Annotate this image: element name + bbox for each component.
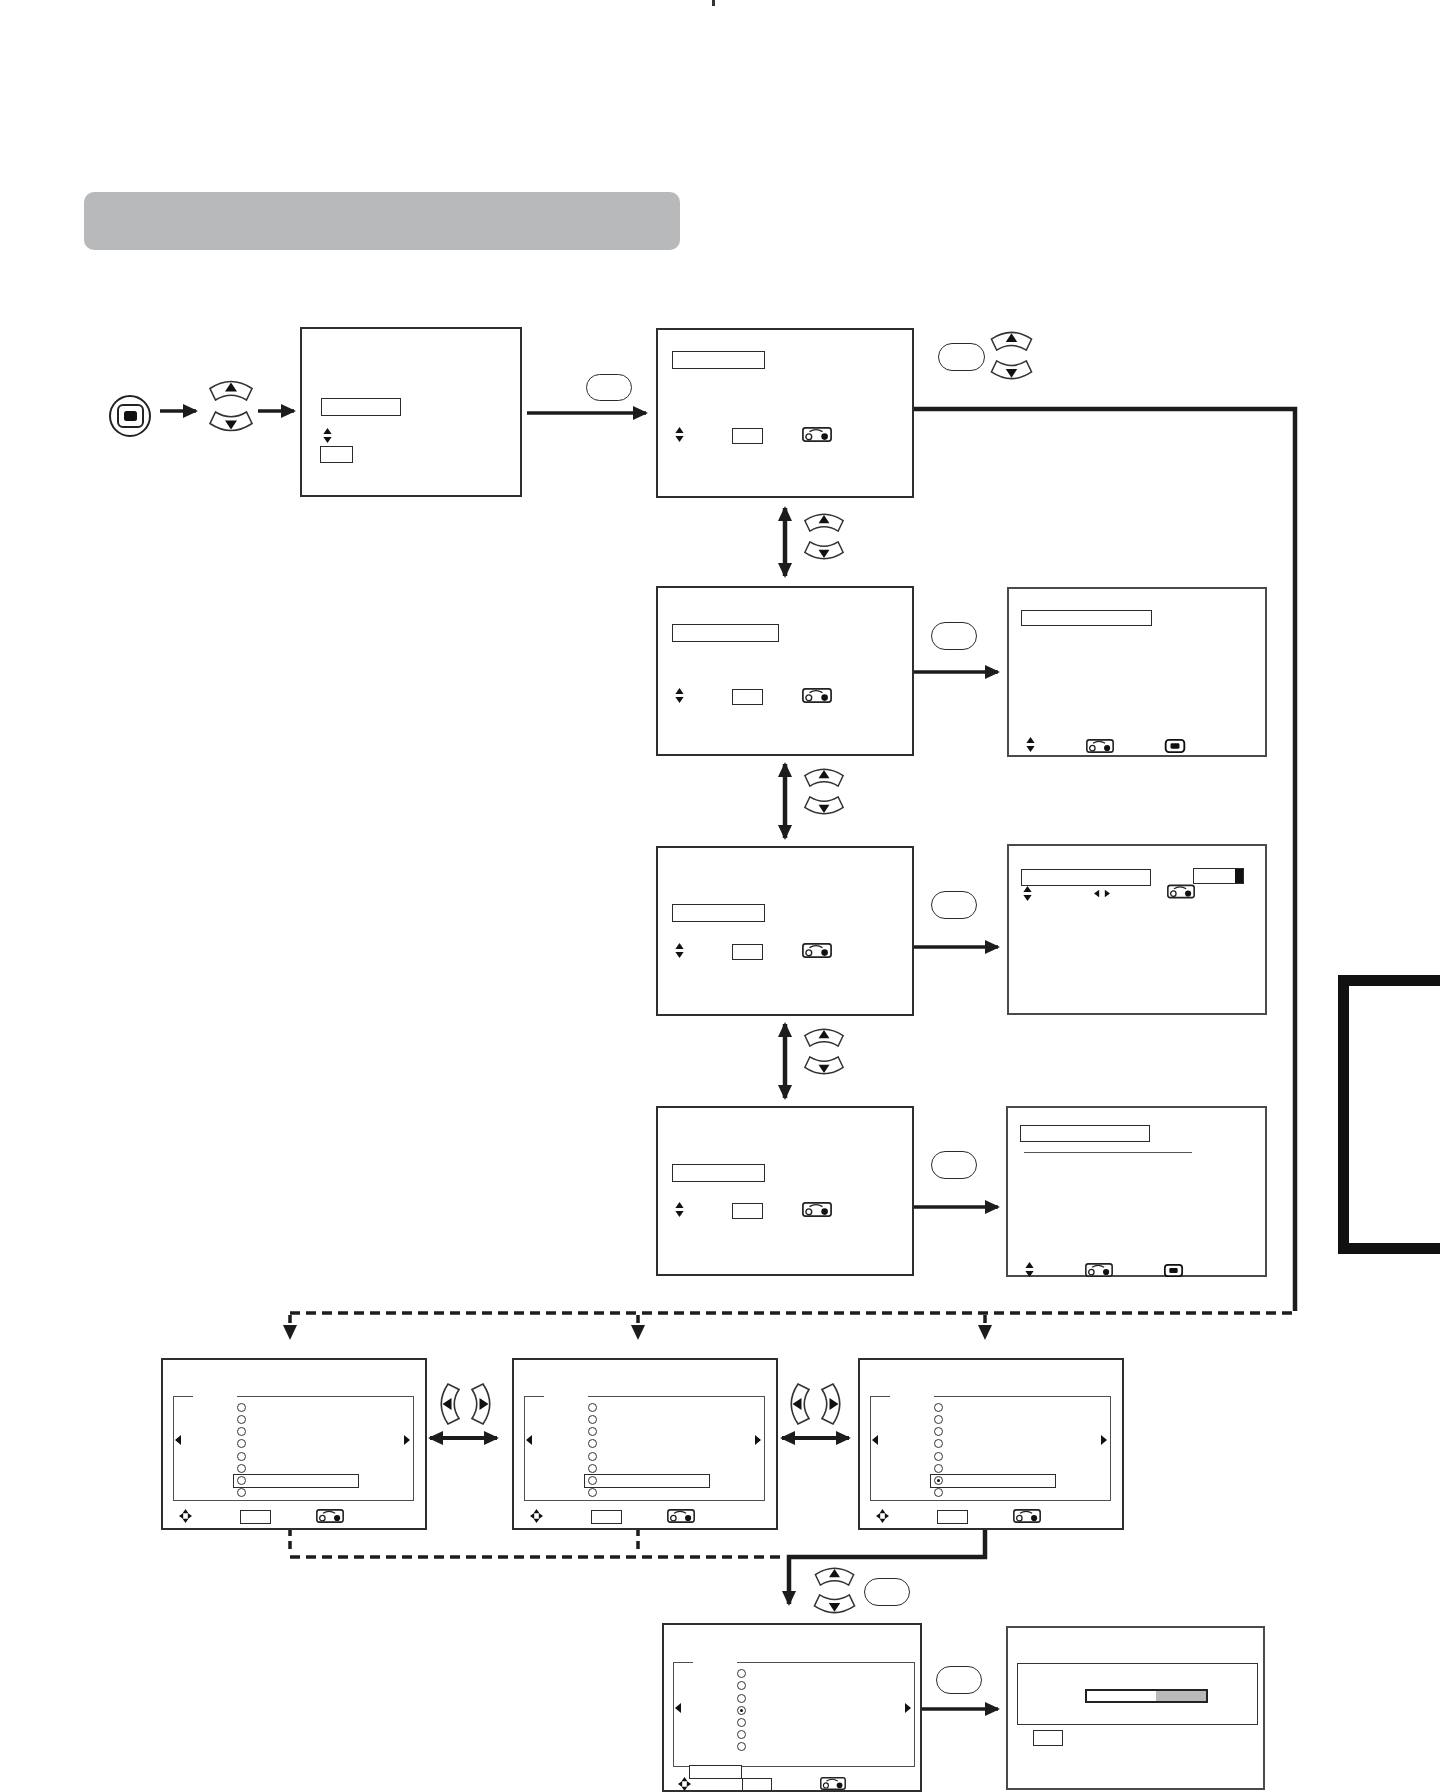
radio-option-icon: [237, 1488, 246, 1497]
left-fan-button-icon: [788, 1382, 810, 1426]
right-fan-button-icon: [471, 1382, 493, 1426]
value-field: [240, 1510, 271, 1524]
radio-option-icon: [737, 1718, 746, 1727]
menu-screen-1: [656, 328, 914, 498]
radio-option-icon: [588, 1464, 597, 1473]
option-screen-c: [858, 1358, 1124, 1530]
radio-option-icon: [237, 1427, 246, 1436]
result-screen-2: [1007, 587, 1267, 757]
down-fan-button-icon: [803, 1056, 845, 1077]
radio-option-icon: [934, 1403, 943, 1412]
radio-option-icon: [237, 1415, 246, 1424]
menu-title-field: [672, 904, 765, 922]
osd-frame-notch: [890, 1394, 934, 1399]
value-field: [732, 1203, 763, 1219]
mini-up-down-icon: [1026, 737, 1035, 752]
radio-option-icon: [934, 1439, 943, 1448]
radio-option-icon: [588, 1403, 597, 1412]
mini-up-down-icon: [323, 428, 332, 443]
radio-option-selected-icon: [934, 1476, 943, 1485]
selected-row-box: [584, 1474, 710, 1488]
jog-dial-icon: [1086, 739, 1114, 753]
ok-pill-button-icon: [864, 1578, 910, 1606]
menu-button-icon: [109, 395, 151, 437]
result-screen-3: [1007, 844, 1267, 1015]
right-triangle-icon: [404, 1435, 410, 1445]
radio-option-icon: [737, 1669, 746, 1678]
right-triangle-icon: [755, 1435, 761, 1445]
value-field: [732, 689, 763, 705]
osd-root-screen: [300, 327, 522, 497]
right-triangle-icon: [1101, 1435, 1107, 1445]
radio-option-icon: [588, 1476, 597, 1485]
option-screen-a: [161, 1358, 427, 1530]
radio-option-icon: [737, 1742, 746, 1751]
radio-option-icon: [588, 1452, 597, 1461]
value-field: [591, 1510, 622, 1524]
menu-title-field: [672, 624, 779, 642]
four-way-pad-icon: [678, 1777, 691, 1791]
menu-screen-3: [656, 846, 914, 1016]
down-fan-button-icon: [812, 1594, 857, 1616]
label-field: [1033, 1730, 1063, 1746]
four-way-pad-icon: [179, 1509, 192, 1523]
left-triangle-icon: [175, 1435, 181, 1445]
ok-pill-button-icon: [931, 622, 977, 650]
radio-option-icon: [237, 1439, 246, 1448]
menu-title-field: [672, 1164, 765, 1182]
radio-option-icon: [934, 1464, 943, 1473]
value-field: [732, 944, 763, 960]
radio-option-icon: [588, 1439, 597, 1448]
result-screen-4: [1006, 1106, 1267, 1277]
radio-option-icon: [588, 1415, 597, 1424]
label-field: [689, 1765, 742, 1779]
radio-option-icon: [934, 1415, 943, 1424]
down-fan-button-icon: [803, 796, 845, 817]
radio-option-icon: [934, 1452, 943, 1461]
value-field: [937, 1510, 968, 1524]
osd-frame-notch: [544, 1394, 588, 1399]
menu-label-field: [321, 398, 401, 416]
radio-option-selected-icon: [737, 1706, 746, 1715]
jog-dial-icon: [819, 1777, 847, 1790]
jog-dial-icon: [802, 943, 832, 958]
up-fan-button-icon: [208, 378, 254, 401]
up-fan-button-icon: [803, 511, 845, 532]
selected-row-box: [930, 1474, 1056, 1488]
side-tab-marker: [1338, 975, 1440, 1254]
section-title-bar: [84, 192, 680, 250]
radio-option-icon: [588, 1427, 597, 1436]
menu-button-glyph-fill: [124, 411, 137, 421]
radio-option-icon: [934, 1488, 943, 1497]
value-field: [742, 1778, 772, 1791]
title-field: [1021, 869, 1151, 886]
radio-option-icon: [737, 1694, 746, 1703]
osd-frame-notch: [193, 1394, 237, 1399]
osd-frame-notch: [693, 1660, 737, 1665]
jog-dial-icon: [666, 1509, 696, 1523]
four-way-pad-icon: [530, 1509, 543, 1523]
four-way-pad-icon: [876, 1509, 889, 1523]
radio-option-icon: [237, 1403, 246, 1412]
mini-up-down-icon: [675, 427, 684, 442]
radio-option-icon: [737, 1681, 746, 1690]
up-fan-button-icon: [803, 1026, 845, 1047]
jog-dial-icon: [1012, 1509, 1042, 1523]
down-fan-button-icon: [803, 541, 845, 562]
up-fan-button-icon: [803, 766, 845, 787]
page-registration-tick: [712, 0, 715, 6]
down-fan-button-icon: [988, 360, 1035, 382]
level-meter-fill: [1235, 869, 1243, 883]
option-screen-b: [512, 1358, 778, 1530]
left-right-pair-icon: [1094, 889, 1110, 898]
jog-dial-icon: [802, 688, 832, 703]
mini-up-down-icon: [675, 943, 684, 958]
menu-glyph-icon: [1164, 739, 1186, 753]
left-triangle-icon: [872, 1435, 878, 1445]
left-triangle-icon: [526, 1435, 532, 1445]
up-fan-button-icon: [988, 329, 1035, 351]
left-fan-button-icon: [438, 1382, 460, 1426]
menu-title-field: [672, 351, 765, 369]
radio-option-icon: [737, 1730, 746, 1739]
menu-screen-2: [656, 586, 914, 756]
radio-option-icon: [237, 1464, 246, 1473]
mini-up-down-icon: [1025, 1262, 1034, 1277]
value-field: [320, 446, 353, 463]
title-field: [1020, 1125, 1150, 1142]
right-fan-button-icon: [821, 1382, 843, 1426]
ok-pill-button-icon: [938, 343, 985, 371]
menu-glyph-icon: [1163, 1264, 1184, 1277]
value-field: [732, 428, 763, 444]
jog-dial-icon: [1167, 884, 1195, 899]
underline-rule: [1024, 1152, 1192, 1153]
jog-dial-icon: [1085, 1263, 1113, 1277]
radio-option-icon: [237, 1452, 246, 1461]
ok-pill-button-icon: [936, 1666, 982, 1694]
selected-row-box: [233, 1474, 359, 1488]
mini-up-down-icon: [1023, 886, 1032, 901]
mini-up-down-icon: [675, 688, 684, 703]
progress-screen: [1006, 1626, 1265, 1790]
down-fan-button-icon: [208, 411, 254, 434]
radio-option-icon: [934, 1427, 943, 1436]
left-triangle-icon: [675, 1703, 681, 1713]
ok-pill-button-icon: [931, 891, 977, 919]
ok-pill-button-icon: [931, 1151, 977, 1179]
menu-screen-4: [656, 1106, 914, 1276]
radio-option-icon: [237, 1476, 246, 1485]
progress-bar: [1085, 1689, 1208, 1703]
title-field: [1021, 610, 1152, 626]
level-meter: [1193, 868, 1244, 884]
mini-up-down-icon: [675, 1202, 684, 1217]
option-screen-d: [662, 1623, 922, 1792]
ok-pill-button-icon: [586, 374, 632, 401]
jog-dial-icon: [802, 427, 832, 442]
progress-bar-fill: [1156, 1691, 1206, 1701]
jog-dial-icon: [802, 1202, 832, 1217]
up-fan-button-icon: [812, 1565, 857, 1586]
radio-option-icon: [588, 1488, 597, 1497]
right-triangle-icon: [905, 1703, 911, 1713]
manual-page: [0, 0, 1440, 1792]
menu-button-glyph: [117, 404, 144, 428]
jog-dial-icon: [315, 1509, 345, 1523]
osd-frame: [673, 1662, 915, 1767]
